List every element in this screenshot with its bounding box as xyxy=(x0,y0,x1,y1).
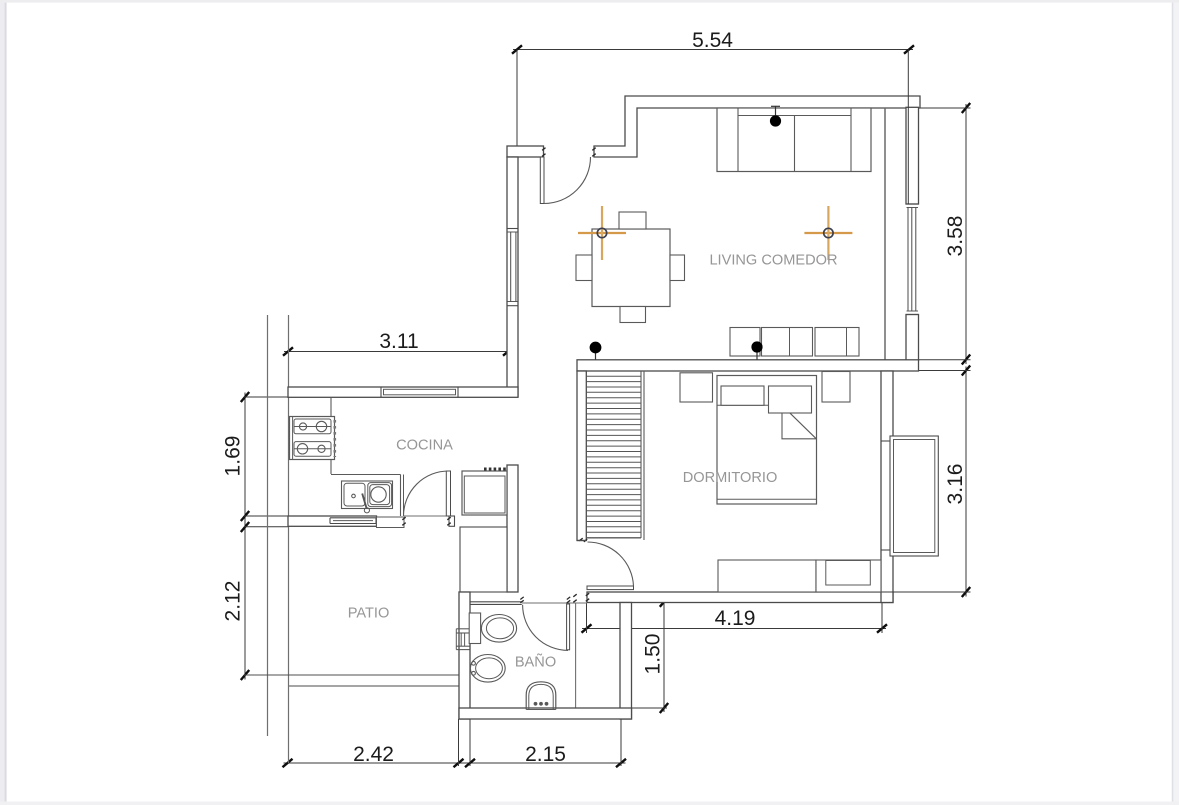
svg-text:LIVING COMEDOR: LIVING COMEDOR xyxy=(709,253,837,269)
svg-text:PATIO: PATIO xyxy=(348,606,390,622)
svg-text:2.42: 2.42 xyxy=(353,743,394,766)
svg-text:5.54: 5.54 xyxy=(692,29,733,52)
svg-text:3.16: 3.16 xyxy=(944,464,967,505)
svg-text:3.11: 3.11 xyxy=(379,330,418,353)
svg-text:3.58: 3.58 xyxy=(944,216,967,257)
svg-text:4.19: 4.19 xyxy=(715,607,756,630)
svg-text:2.15: 2.15 xyxy=(525,743,566,766)
svg-text:BAÑO: BAÑO xyxy=(515,654,556,671)
svg-text:2.12: 2.12 xyxy=(222,581,245,622)
svg-text:COCINA: COCINA xyxy=(396,438,453,454)
svg-text:1.50: 1.50 xyxy=(642,634,665,675)
svg-text:DORMITORIO: DORMITORIO xyxy=(683,470,778,486)
svg-text:1.69: 1.69 xyxy=(222,436,245,477)
